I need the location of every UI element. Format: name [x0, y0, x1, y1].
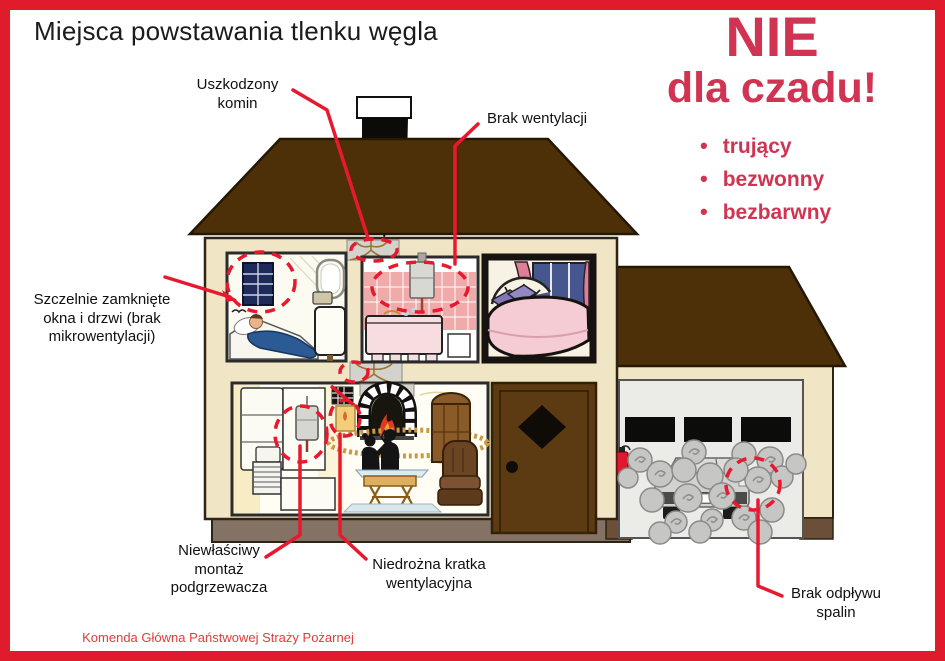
callout-no-exhaust-outflow: Brak odpływu spalin	[780, 585, 892, 622]
armchair	[438, 441, 482, 505]
main-roof	[190, 139, 637, 234]
bedroom-picture	[485, 257, 593, 360]
living-room	[232, 383, 488, 515]
callout-no-ventilation: Brak wentylacji	[487, 110, 587, 129]
bathtub	[366, 308, 442, 362]
kitchen-appliance	[256, 447, 280, 462]
publisher-line1: Komenda Główna Państwowej Straży Pożarne…	[62, 630, 374, 646]
garage-window	[684, 417, 732, 442]
bed	[488, 297, 589, 356]
callout-sealed-windows: Szczelnie zamknięte okna i drzwi (brak m…	[28, 291, 176, 347]
garage-window	[625, 417, 675, 442]
door-knob-icon	[506, 461, 518, 473]
bedroom	[227, 253, 346, 361]
callout-heater-installation: Niewłaściwy montaż podgrzewacza	[160, 542, 278, 598]
closed-window	[243, 263, 273, 305]
callout-damaged-chimney: Uszkodzony komin	[180, 76, 295, 113]
garage-roof	[617, 267, 845, 366]
radio	[313, 292, 332, 304]
bathroom	[362, 253, 478, 362]
counter	[281, 478, 335, 510]
ventilation-grille	[331, 386, 355, 406]
rug-small	[344, 504, 441, 512]
garage-foundation-right	[800, 518, 833, 539]
gas-box	[336, 406, 355, 431]
garage	[617, 380, 806, 544]
co-safety-poster: Miejsca powstawania tlenku węgla NIE dla…	[0, 0, 945, 661]
garage-window	[741, 417, 791, 442]
callout-blocked-grille: Niedrożna kratka wentylacyjna	[355, 556, 503, 593]
front-door	[492, 383, 596, 533]
white-panel	[315, 307, 345, 361]
stool	[448, 334, 470, 357]
publisher-credit: Komenda Główna Państwowej Straży Pożarne…	[62, 614, 374, 661]
radiator	[253, 462, 281, 494]
